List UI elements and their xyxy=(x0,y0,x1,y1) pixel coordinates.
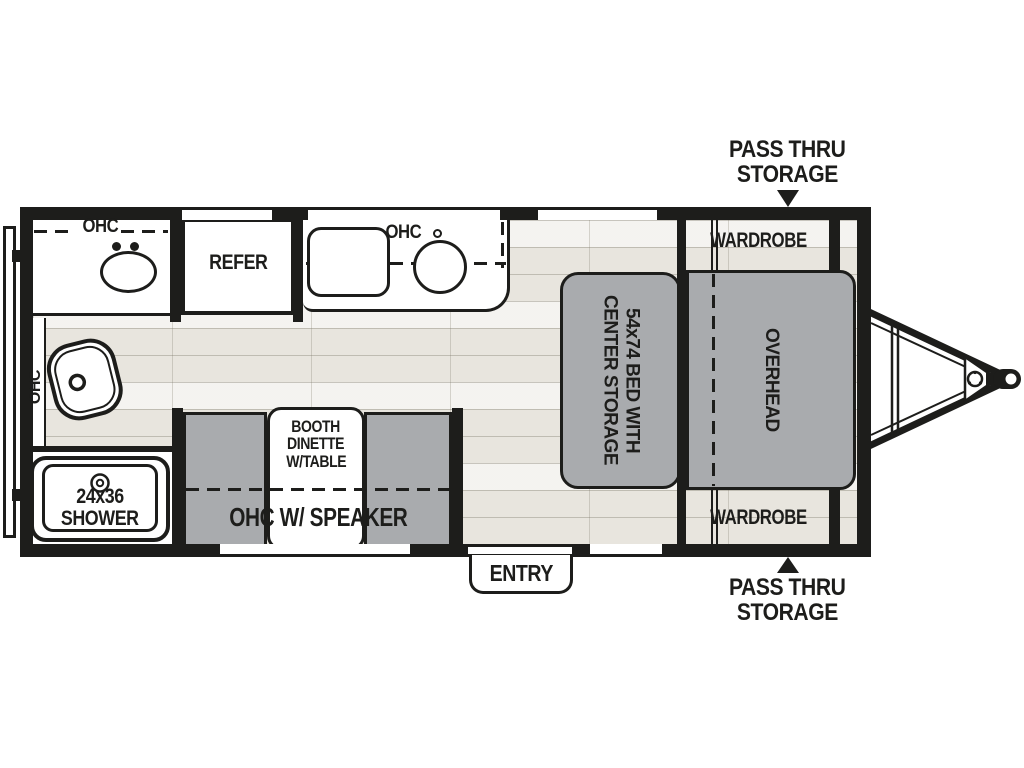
wall-vanity-refer xyxy=(170,207,181,322)
bed: 54x74 BED WITH CENTER STORAGE xyxy=(560,272,681,489)
window xyxy=(220,544,410,557)
bath-wall xyxy=(33,446,181,452)
pass-thru-top-text-1: PASS THRU xyxy=(729,137,846,162)
pass-thru-bottom-text-2: STORAGE xyxy=(737,600,838,625)
pass-thru-arrow-bottom xyxy=(777,557,799,573)
pass-thru-label-bottom: PASS THRU STORAGE xyxy=(700,574,875,626)
entry-text: ENTRY xyxy=(489,561,552,585)
shower-head-icon xyxy=(88,471,112,495)
wardrobe-bottom-label: WARDROBE xyxy=(686,505,830,531)
bed-label: 54x74 BED WITH CENTER STORAGE xyxy=(599,295,643,465)
bed-text-1: 54x74 BED WITH xyxy=(621,295,643,465)
dinette-left-wall xyxy=(172,408,183,549)
bedroom-wall xyxy=(677,207,686,557)
booth-text-2: DINETTE xyxy=(287,436,344,453)
toilet-icon xyxy=(44,334,130,426)
pass-thru-label-top: PASS THRU STORAGE xyxy=(700,136,875,188)
ohc-bath-text: OHC xyxy=(82,217,118,237)
window xyxy=(590,544,662,557)
pass-thru-arrow-top xyxy=(777,190,799,207)
ohc-kitchen-label: OHC xyxy=(368,221,438,245)
vanity-sink-icon xyxy=(100,251,157,293)
wardrobe-bottom-wall xyxy=(829,490,840,544)
hitch-icon xyxy=(855,290,1024,468)
window xyxy=(308,207,500,220)
floorplan-canvas: OHC 24x36 SHOWER BOOTH DINETTE W/TABLE O… xyxy=(0,0,1024,768)
ohc-speaker-text: OHC W/ SPEAKER xyxy=(229,504,407,531)
vanity-bottom-line xyxy=(33,313,170,316)
booth-text-3: W/TABLE xyxy=(286,454,346,471)
kitchen-partition xyxy=(507,220,510,268)
kitchen-sink-icon xyxy=(413,240,467,294)
booth-text-1: BOOTH xyxy=(292,419,341,436)
overhead-text: OVERHEAD xyxy=(760,328,782,432)
wardrobe-bottom-text: WARDROBE xyxy=(710,507,807,529)
ohc-left-label: OHC xyxy=(24,352,48,422)
ohc-bath-label: OHC xyxy=(60,215,140,239)
entry-label: ENTRY xyxy=(469,555,573,594)
bed-text-2: CENTER STORAGE xyxy=(599,295,621,465)
pass-thru-top-text-2: STORAGE xyxy=(737,162,838,187)
wall-bottom xyxy=(20,544,871,557)
wardrobe-top-wall xyxy=(829,220,840,270)
wardrobe-top-label: WARDROBE xyxy=(686,228,830,254)
dinette-dash xyxy=(186,488,452,491)
shower-text: SHOWER xyxy=(61,508,139,530)
ohc-speaker-label: OHC W/ SPEAKER xyxy=(196,502,440,534)
kitchen-dash-vert xyxy=(501,222,504,268)
window xyxy=(182,207,272,220)
wardrobe-top-text: WARDROBE xyxy=(710,230,807,252)
refer-label: REFER xyxy=(185,250,291,276)
pass-thru-bottom-text-1: PASS THRU xyxy=(729,575,846,600)
dinette-right-wall xyxy=(452,408,463,549)
wall-refer-counter xyxy=(293,207,303,322)
vanity-faucet-icon xyxy=(112,242,121,251)
ohc-left-text: OHC xyxy=(28,370,45,404)
bedroom-dash xyxy=(712,274,715,486)
booth-dinette-label: BOOTH DINETTE W/TABLE xyxy=(267,416,365,474)
refer-text: REFER xyxy=(209,252,267,274)
vanity-faucet-icon xyxy=(130,242,139,251)
wall-front xyxy=(857,207,871,557)
ohc-kitchen-text: OHC xyxy=(385,223,421,243)
window xyxy=(538,207,657,220)
